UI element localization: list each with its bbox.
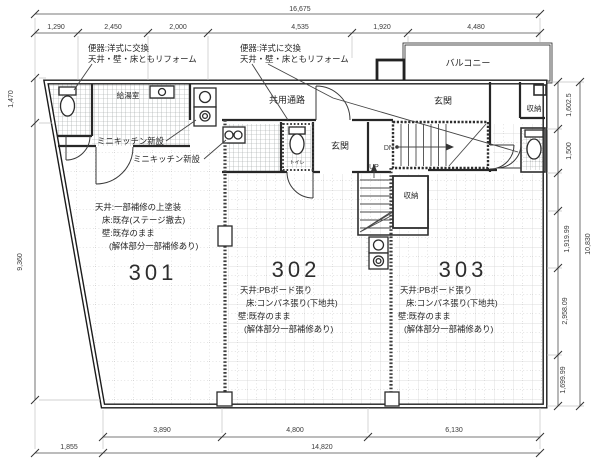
dim-top-total: 16,675 [289, 6, 311, 13]
dim-bottom-2: 6,130 [445, 427, 463, 434]
room-302-note-3: (解体部分一部補修あり) [244, 324, 334, 334]
room-302-note-1: 床:コンパネ張り(下地共) [246, 298, 338, 308]
toilet-icon-left [59, 87, 76, 116]
dim-top-4: 1,920 [373, 24, 391, 31]
pantry-sink-icon [150, 86, 174, 98]
room-301-note-3: (解体部分一部補修あり) [109, 241, 199, 251]
room-303-note-1: 床:コンパネ張り(下地共) [406, 298, 498, 308]
note-toilet-right-line1: 便器:洋式に交換 [240, 43, 302, 53]
note-toilet-right-line2: 天井・壁・床ともリフォーム [240, 54, 349, 64]
mini-kitchen-icon-303 [369, 237, 388, 269]
room-303-note-3: (解体部分一部補修あり) [404, 324, 494, 334]
dim-right-2: 1,919.99 [564, 225, 571, 252]
dim-right-1: 1,500 [566, 142, 573, 160]
dim-right-3: 2,958.09 [562, 297, 569, 324]
room-301-note-0: 天井:一部補修の上塗装 [95, 202, 182, 212]
dim-right-4: 1,699.99 [560, 366, 567, 393]
column-bottom-right [385, 392, 399, 406]
room-301-note-2: 壁:既存のまま [102, 228, 155, 238]
dim-right-0: 1,602.5 [566, 93, 573, 116]
label-entrance-center: 玄関 [331, 140, 349, 151]
entry-porch [377, 60, 404, 82]
room-302-number: 302 [272, 257, 321, 282]
dim-right-total: 10,830 [585, 233, 592, 255]
label-storage-stair: 収納 [403, 190, 418, 200]
note-toilet-left-line1: 便器:洋式に交換 [88, 43, 150, 53]
dim-bottom-offset: 1,855 [60, 444, 78, 451]
mini-kitchen-icon-corridor [194, 88, 216, 126]
dim-bottom-0: 3,890 [153, 427, 171, 434]
note-mini-kitchen-a: ミニキッチン新設 [97, 136, 165, 146]
room-302-note-2: 壁:既存のまま [238, 311, 291, 321]
dim-top-1: 2,450 [104, 24, 122, 31]
label-balcony: バルコニー [446, 58, 491, 68]
floor-plan: 16,675 1,290 2,450 2,000 4,535 1,920 4,4… [0, 0, 600, 473]
column-bottom-left [217, 392, 232, 406]
room-303-note-0: 天井:PBボード張り [400, 285, 472, 295]
staircase-upper [393, 122, 488, 168]
dim-bottom-1: 4,800 [286, 427, 304, 434]
room-301-number: 301 [129, 260, 178, 285]
label-up: UP [369, 164, 379, 171]
room-303-number: 303 [439, 257, 488, 282]
toilet-icon-302 [289, 127, 305, 154]
dim-top-3: 4,535 [291, 24, 309, 31]
column-mid [218, 226, 232, 246]
label-entrance-right: 玄関 [434, 95, 452, 106]
floor-plan-canvas: 16,675 1,290 2,450 2,000 4,535 1,920 4,4… [0, 0, 600, 473]
dim-left-0: 1,470 [8, 90, 15, 108]
dim-bottom-total: 14,820 [311, 444, 333, 451]
dim-top-2: 2,000 [169, 24, 187, 31]
mini-kitchen-icon-302 [223, 127, 245, 143]
label-toilet: トイレ [289, 160, 304, 166]
label-corridor: 共用通路 [269, 94, 305, 105]
label-pantry: 給湯室 [117, 90, 140, 100]
label-dn: DN [384, 145, 394, 152]
toilet-icon-right [525, 130, 543, 159]
dim-left-1: 9,360 [17, 253, 24, 271]
note-toilet-left-line2: 天井・壁・床ともリフォーム [88, 54, 197, 64]
room-301-note-1: 床:既存(ステージ撤去) [102, 215, 185, 225]
note-mini-kitchen-b: ミニキッチン新設 [133, 154, 201, 164]
dim-top-0: 1,290 [47, 24, 65, 31]
room-303-note-2: 壁:既存のまま [398, 311, 451, 321]
label-storage-right: 収納 [526, 103, 541, 113]
storage-under-stairs-room [393, 176, 428, 228]
dim-top-5: 4,480 [467, 24, 485, 31]
room-302-note-0: 天井:PBボード張り [240, 285, 312, 295]
